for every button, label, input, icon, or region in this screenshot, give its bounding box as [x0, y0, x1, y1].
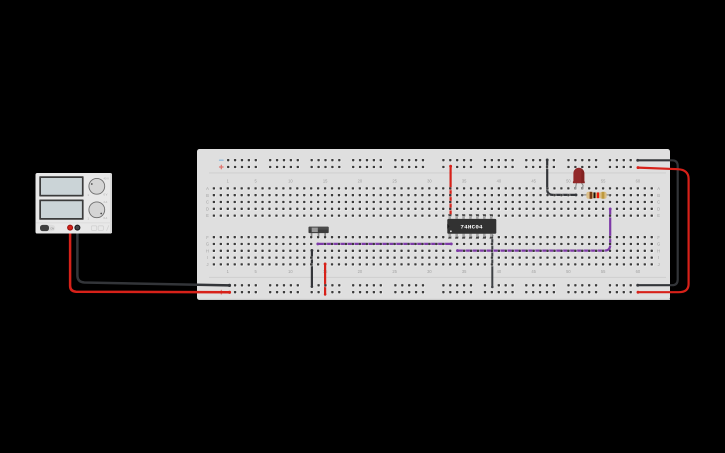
- svg-text:30: 30: [427, 269, 432, 274]
- svg-text:60: 60: [636, 179, 641, 184]
- svg-text:0 V: 0 V: [104, 193, 108, 197]
- svg-text:20: 20: [358, 269, 363, 274]
- svg-text:40: 40: [497, 269, 502, 274]
- svg-text:J: J: [206, 262, 208, 267]
- svg-text:I: I: [658, 255, 659, 260]
- svg-text:55: 55: [601, 179, 606, 184]
- svg-text:30: 30: [427, 179, 432, 184]
- svg-text:J: J: [658, 262, 660, 267]
- svg-text:40: 40: [497, 179, 502, 184]
- svg-text:A: A: [206, 186, 209, 191]
- svg-text:C: C: [206, 200, 209, 205]
- svg-text:G: G: [657, 242, 660, 247]
- svg-text:20: 20: [358, 179, 363, 184]
- svg-text:H: H: [206, 248, 209, 253]
- svg-text:E: E: [657, 213, 660, 218]
- svg-text:C: C: [657, 200, 660, 205]
- svg-text:2 A: 2 A: [104, 200, 108, 204]
- svg-text:60: 60: [636, 269, 641, 274]
- svg-text:D: D: [657, 206, 660, 211]
- svg-text:10: 10: [288, 269, 293, 274]
- svg-text:A: A: [657, 186, 660, 191]
- svg-text:0 A: 0 A: [104, 216, 108, 220]
- svg-text:50: 50: [566, 179, 571, 184]
- svg-text:50: 50: [566, 269, 571, 274]
- svg-text:45: 45: [531, 179, 536, 184]
- svg-text:55: 55: [601, 269, 606, 274]
- svg-text:45: 45: [531, 269, 536, 274]
- svg-text:B: B: [206, 193, 209, 198]
- svg-text:ON: ON: [50, 226, 54, 230]
- svg-text:10: 10: [288, 179, 293, 184]
- svg-text:D: D: [206, 206, 209, 211]
- svg-text:G: G: [206, 242, 209, 247]
- svg-text:I: I: [207, 255, 208, 260]
- svg-text:E: E: [206, 213, 209, 218]
- svg-text:15: 15: [323, 179, 328, 184]
- svg-text:25: 25: [392, 179, 397, 184]
- svg-text:35: 35: [462, 179, 467, 184]
- svg-text:H: H: [657, 248, 660, 253]
- svg-text:B: B: [657, 193, 660, 198]
- svg-text:74HC04: 74HC04: [460, 224, 483, 231]
- svg-text:25: 25: [392, 269, 397, 274]
- svg-text:40 V: 40 V: [104, 177, 110, 181]
- svg-text:35: 35: [462, 269, 467, 274]
